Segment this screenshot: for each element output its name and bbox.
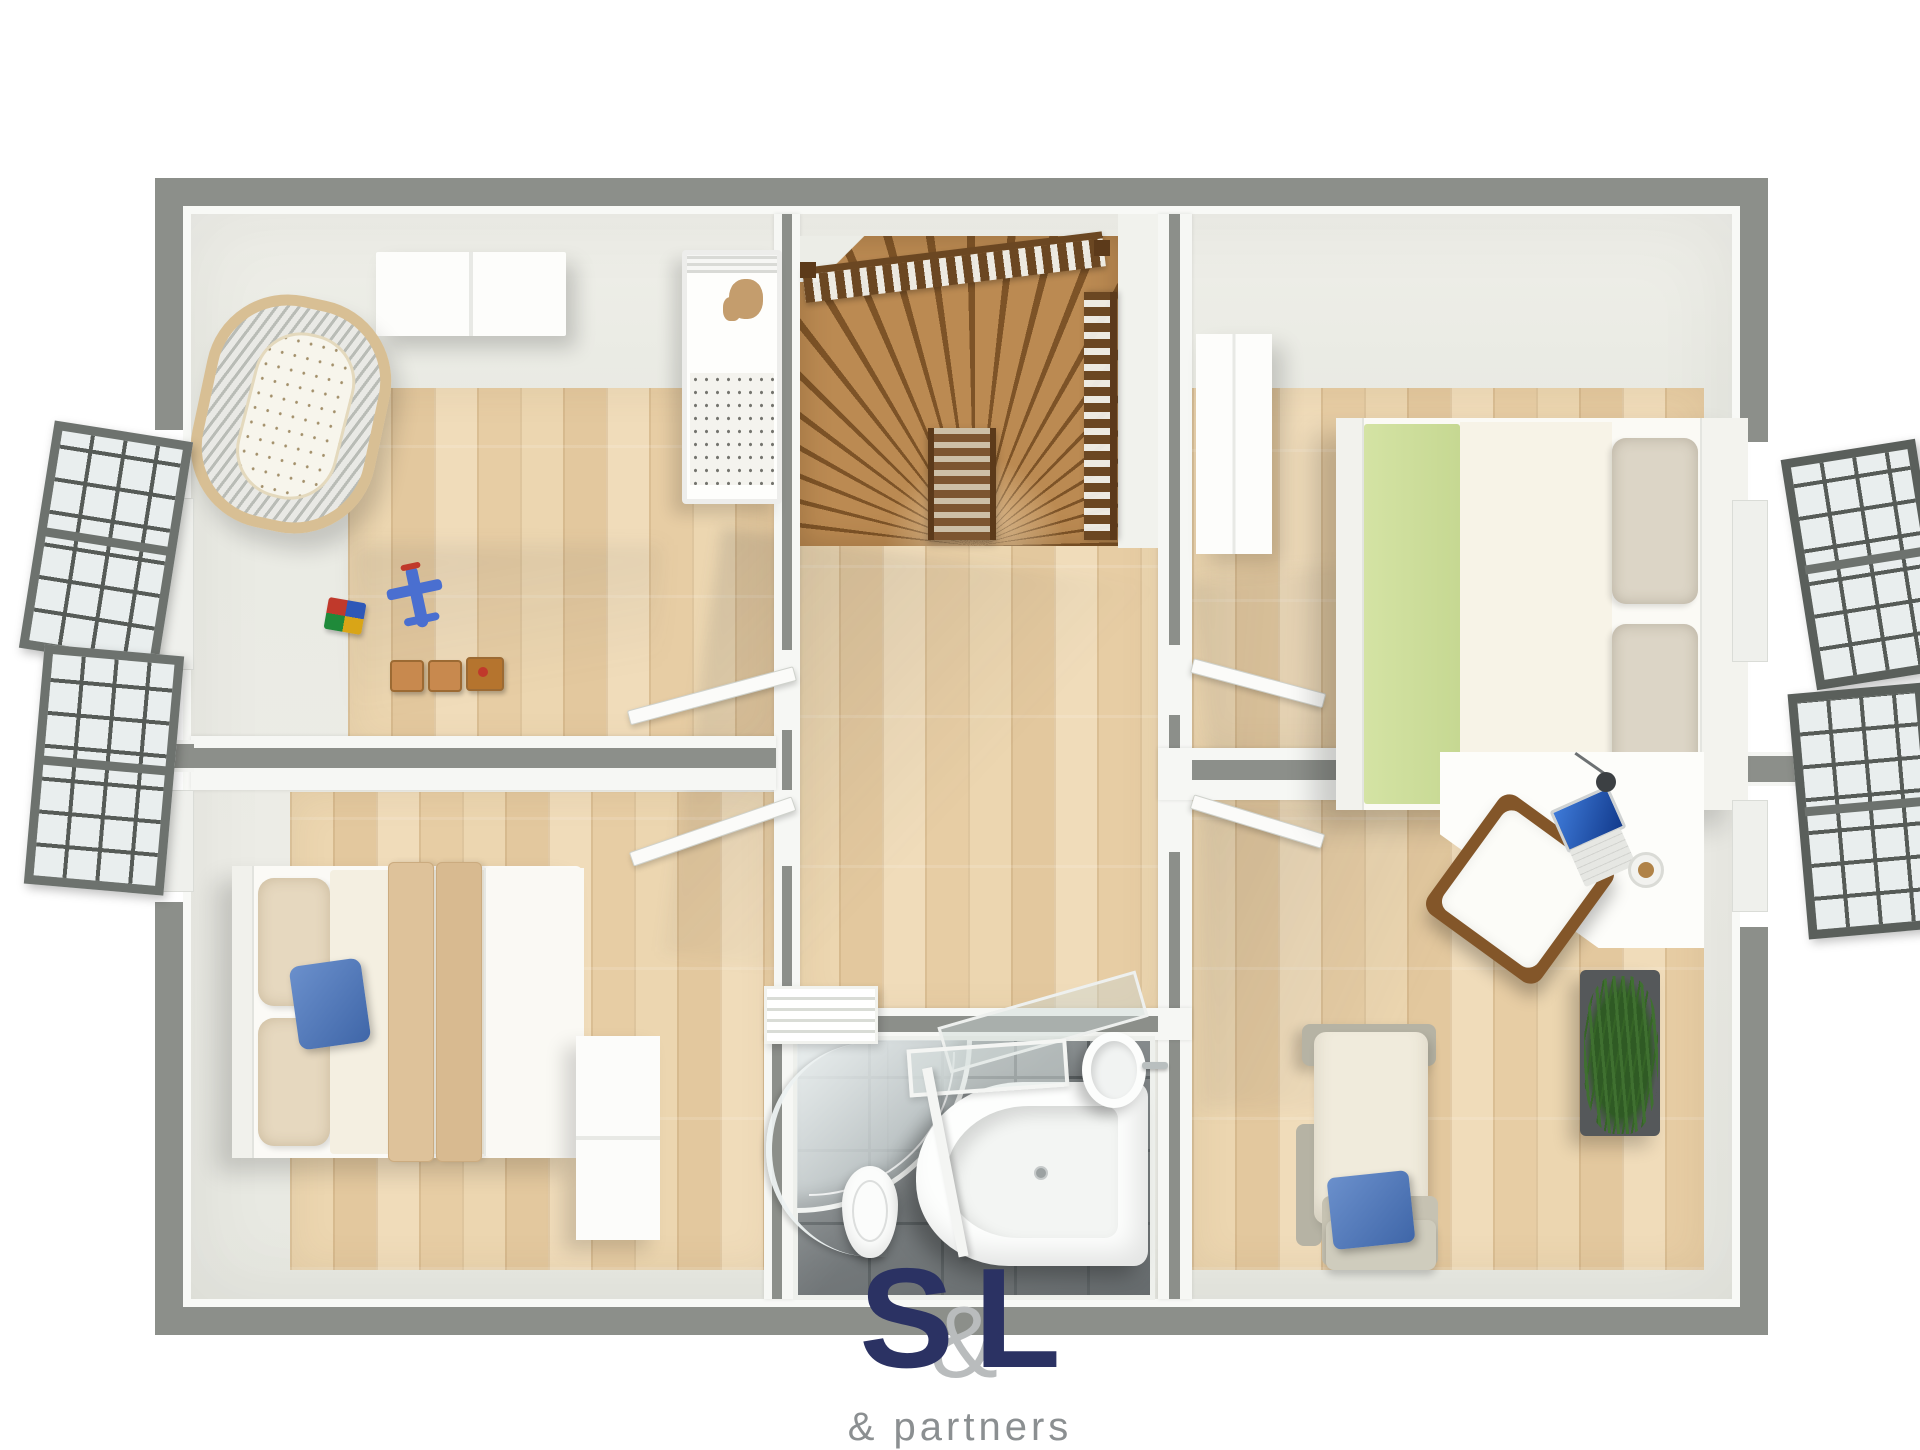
logo-letter-l: L [974, 1239, 1061, 1398]
headboard [232, 866, 254, 1158]
teddy-bear [729, 279, 763, 319]
armchair [1298, 1028, 1440, 1272]
coffee-cup [1628, 852, 1664, 888]
crib-mattress [226, 322, 366, 510]
floorplan-render: S&L & partners [0, 0, 1920, 1440]
wall-core [782, 214, 792, 650]
wardrobe [1196, 334, 1272, 554]
toy-blocks [324, 597, 367, 635]
window-sill [1732, 800, 1768, 912]
desk-lamp [1596, 772, 1616, 792]
wall-core [1169, 852, 1180, 1299]
footboard [1336, 418, 1364, 810]
casement-window-right-1 [1781, 439, 1920, 690]
bathtub-drain [1034, 1166, 1048, 1180]
logo-letter-s: S [859, 1239, 954, 1398]
bed-top-right [1336, 418, 1746, 810]
blue-pillow [289, 957, 372, 1050]
logo-wordmark: S&L [0, 1248, 1920, 1393]
casement-window-left-2 [24, 644, 184, 895]
wall-core [782, 730, 792, 790]
pillow [1612, 438, 1698, 604]
logo: S&L & partners [0, 1248, 1920, 1450]
baby-cot [682, 250, 782, 504]
plant-grass [1584, 976, 1658, 1134]
bed-bottom-left [232, 866, 582, 1158]
footboard [484, 868, 584, 1156]
casement-window-right-2 [1788, 683, 1920, 940]
sink [1082, 1032, 1146, 1108]
stair-gate [928, 428, 996, 540]
cot-headrail [687, 255, 777, 273]
radiator [764, 986, 878, 1044]
bed-throw [388, 862, 434, 1162]
window-sill [1732, 500, 1768, 662]
logo-tagline: & partners [0, 1405, 1920, 1450]
newel-post [800, 262, 816, 278]
wall-stairwell-right [1118, 214, 1158, 548]
duvet [1460, 422, 1612, 806]
blue-pillow [1326, 1170, 1415, 1250]
nursery-dresser [376, 252, 566, 336]
newel-post [1094, 240, 1110, 256]
bathtub-basin [946, 1106, 1118, 1238]
cot-blanket [690, 373, 774, 485]
bedroom-dresser [576, 1036, 660, 1240]
wall-core [191, 748, 776, 768]
sink-faucet [1142, 1062, 1168, 1069]
balustrade-right [1084, 292, 1117, 540]
wall-core [1169, 214, 1180, 645]
bed-throw [436, 862, 482, 1162]
toy-train [390, 652, 510, 696]
green-throw [1364, 424, 1460, 804]
